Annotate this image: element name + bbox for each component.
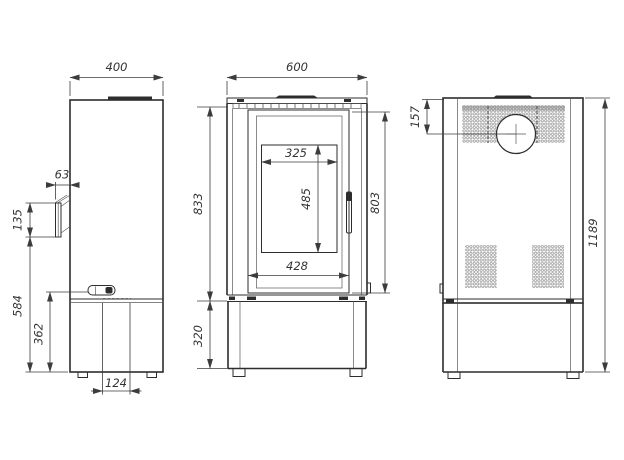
front-view: 600 833 320 803 325 485 428 bbox=[191, 60, 390, 377]
back-base-outline bbox=[443, 303, 583, 372]
side-foot-left bbox=[78, 372, 88, 378]
back-side-tab bbox=[440, 284, 443, 293]
front-band-mark3 bbox=[339, 297, 348, 301]
back-flue-collar bbox=[493, 96, 533, 99]
back-foot-left bbox=[448, 372, 460, 379]
back-band-mark-left bbox=[446, 300, 454, 303]
bracket-diagonals bbox=[56, 195, 71, 233]
front-band-mark4 bbox=[359, 297, 365, 301]
dim-label-base-height: 320 bbox=[191, 325, 205, 347]
back-top-vent-dark-row bbox=[462, 106, 565, 111]
back-lower-vent-right bbox=[532, 245, 564, 288]
dim-label-drawer-width: 124 bbox=[105, 376, 127, 390]
handle-knob bbox=[106, 287, 113, 294]
dim-label-body-height: 833 bbox=[191, 193, 205, 215]
side-dimensions: 400 63 135 584 362 124 bbox=[11, 60, 164, 395]
front-top-clip-left bbox=[237, 99, 244, 102]
side-view: 400 63 135 584 362 124 bbox=[11, 60, 164, 395]
dim-label-lower-height: 584 bbox=[11, 295, 25, 317]
front-band-mark2 bbox=[247, 297, 256, 301]
technical-drawing-page: 400 63 135 584 362 124 bbox=[0, 0, 624, 460]
ext-lines-left-chain bbox=[26, 203, 69, 372]
dim-label-front-width: 600 bbox=[286, 60, 308, 74]
back-foot-right bbox=[567, 372, 579, 379]
stove-dimension-drawing: 400 63 135 584 362 124 bbox=[0, 0, 624, 460]
handle-grip bbox=[347, 192, 352, 201]
side-foot-right bbox=[147, 372, 157, 378]
side-top-lip bbox=[108, 97, 152, 101]
front-foot-left bbox=[233, 369, 245, 377]
dim-label-total-height: 1189 bbox=[586, 218, 600, 247]
ext-lines-400 bbox=[70, 81, 163, 96]
front-flue-collar bbox=[275, 96, 318, 99]
side-door-handle bbox=[88, 286, 115, 296]
front-base-posts bbox=[240, 302, 354, 369]
dim-label-glass-width: 325 bbox=[285, 146, 307, 160]
side-body-outline bbox=[70, 100, 163, 372]
dim-label-handle-height: 362 bbox=[32, 323, 46, 345]
front-vent-strip bbox=[233, 104, 361, 109]
dim-label-door-height: 803 bbox=[368, 192, 382, 214]
front-top-clip-right bbox=[344, 99, 351, 102]
ext-lines-600 bbox=[227, 81, 367, 95]
dim-label-bracket-height: 135 bbox=[11, 209, 25, 231]
back-view: 157 1189 bbox=[408, 96, 610, 379]
dim-label-glass-height: 485 bbox=[299, 188, 313, 210]
dim-label-door-width: 428 bbox=[286, 259, 308, 273]
front-dimensions: 600 833 320 803 325 485 428 bbox=[191, 60, 390, 369]
back-band-mark-right bbox=[566, 300, 574, 303]
front-foot-right bbox=[350, 369, 362, 377]
front-vent-ticks bbox=[239, 104, 351, 108]
dim-label-side-width: 400 bbox=[106, 60, 128, 74]
back-lower-vent-left bbox=[465, 245, 497, 288]
dim-label-flue-offset-back: 157 bbox=[408, 105, 422, 128]
front-base-outline bbox=[228, 302, 366, 369]
side-rear-bracket bbox=[56, 195, 71, 237]
front-band-mark1 bbox=[229, 297, 235, 301]
dim-label-flue-offset: 63 bbox=[55, 168, 70, 182]
